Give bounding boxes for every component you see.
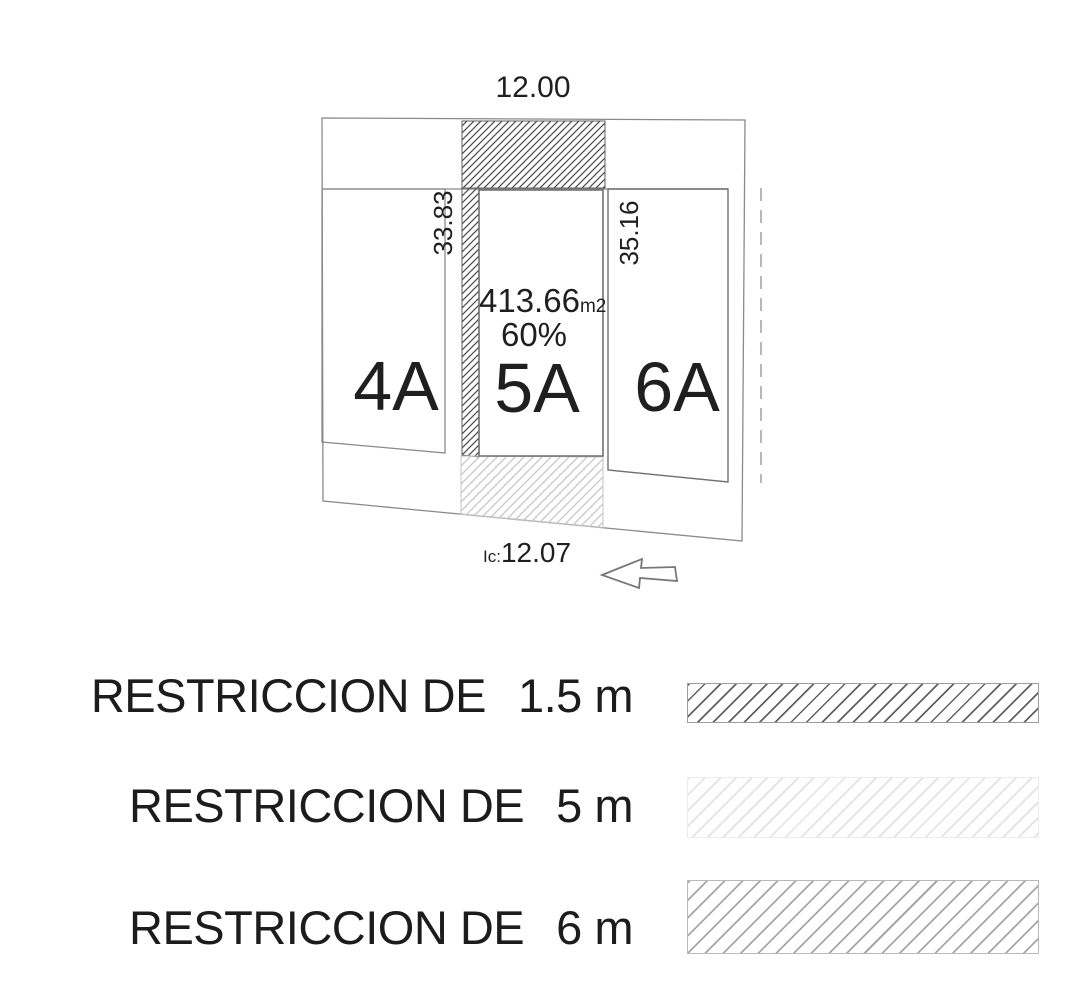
legend-swatch-dense-dark-hatch — [687, 683, 1039, 723]
restriction-hatch-side-strip — [462, 188, 479, 457]
legend-row-restriction-6m: RESTRICCION DE 6 m — [129, 904, 633, 951]
lot-6a-label: 6A — [634, 348, 720, 426]
dimension-left-depth: 33.83 — [428, 190, 458, 255]
legend-label: RESTRICCION DE — [129, 904, 524, 951]
restriction-hatch-top — [462, 121, 605, 188]
legend-value: 6 m — [556, 904, 633, 951]
lot-5a-area-unit: m2 — [580, 296, 606, 317]
lot-5a-label: 5A — [494, 349, 580, 427]
legend-value: 5 m — [556, 782, 633, 829]
dimension-right-depth: 35.16 — [614, 200, 644, 265]
restriction-hatch-bottom — [461, 456, 603, 528]
legend-label: RESTRICCION DE — [91, 672, 486, 719]
lot-5a-area-value: 413.66 — [479, 282, 580, 319]
legend-row-restriction-5m: RESTRICCION DE 5 m — [129, 782, 633, 829]
dimension-frontage-prefix: Ic: — [483, 547, 501, 566]
lot-4a-label: 4A — [353, 347, 439, 425]
dimension-frontage: Ic:12.07 — [483, 537, 571, 568]
dimension-frontage-value: 12.07 — [501, 537, 571, 568]
site-plan-svg: 12.00 33.83 35.16 413.66m2 60% 4A 5A 6A … — [0, 0, 1079, 1008]
legend-swatch-faint-light-hatch — [687, 777, 1039, 838]
lot-5a-coverage: 60% — [501, 316, 567, 353]
legend-swatch-medium-gray-hatch — [687, 880, 1039, 954]
direction-arrow-icon — [602, 559, 677, 588]
legend-value: 1.5 m — [518, 672, 633, 719]
legend-label: RESTRICCION DE — [129, 782, 524, 829]
dimension-top-width: 12.00 — [495, 71, 570, 104]
site-plan-page: 12.00 33.83 35.16 413.66m2 60% 4A 5A 6A … — [0, 0, 1079, 1008]
lot-5a-area: 413.66m2 — [479, 282, 606, 319]
legend-row-restriction-1-5m: RESTRICCION DE 1.5 m — [91, 672, 633, 719]
